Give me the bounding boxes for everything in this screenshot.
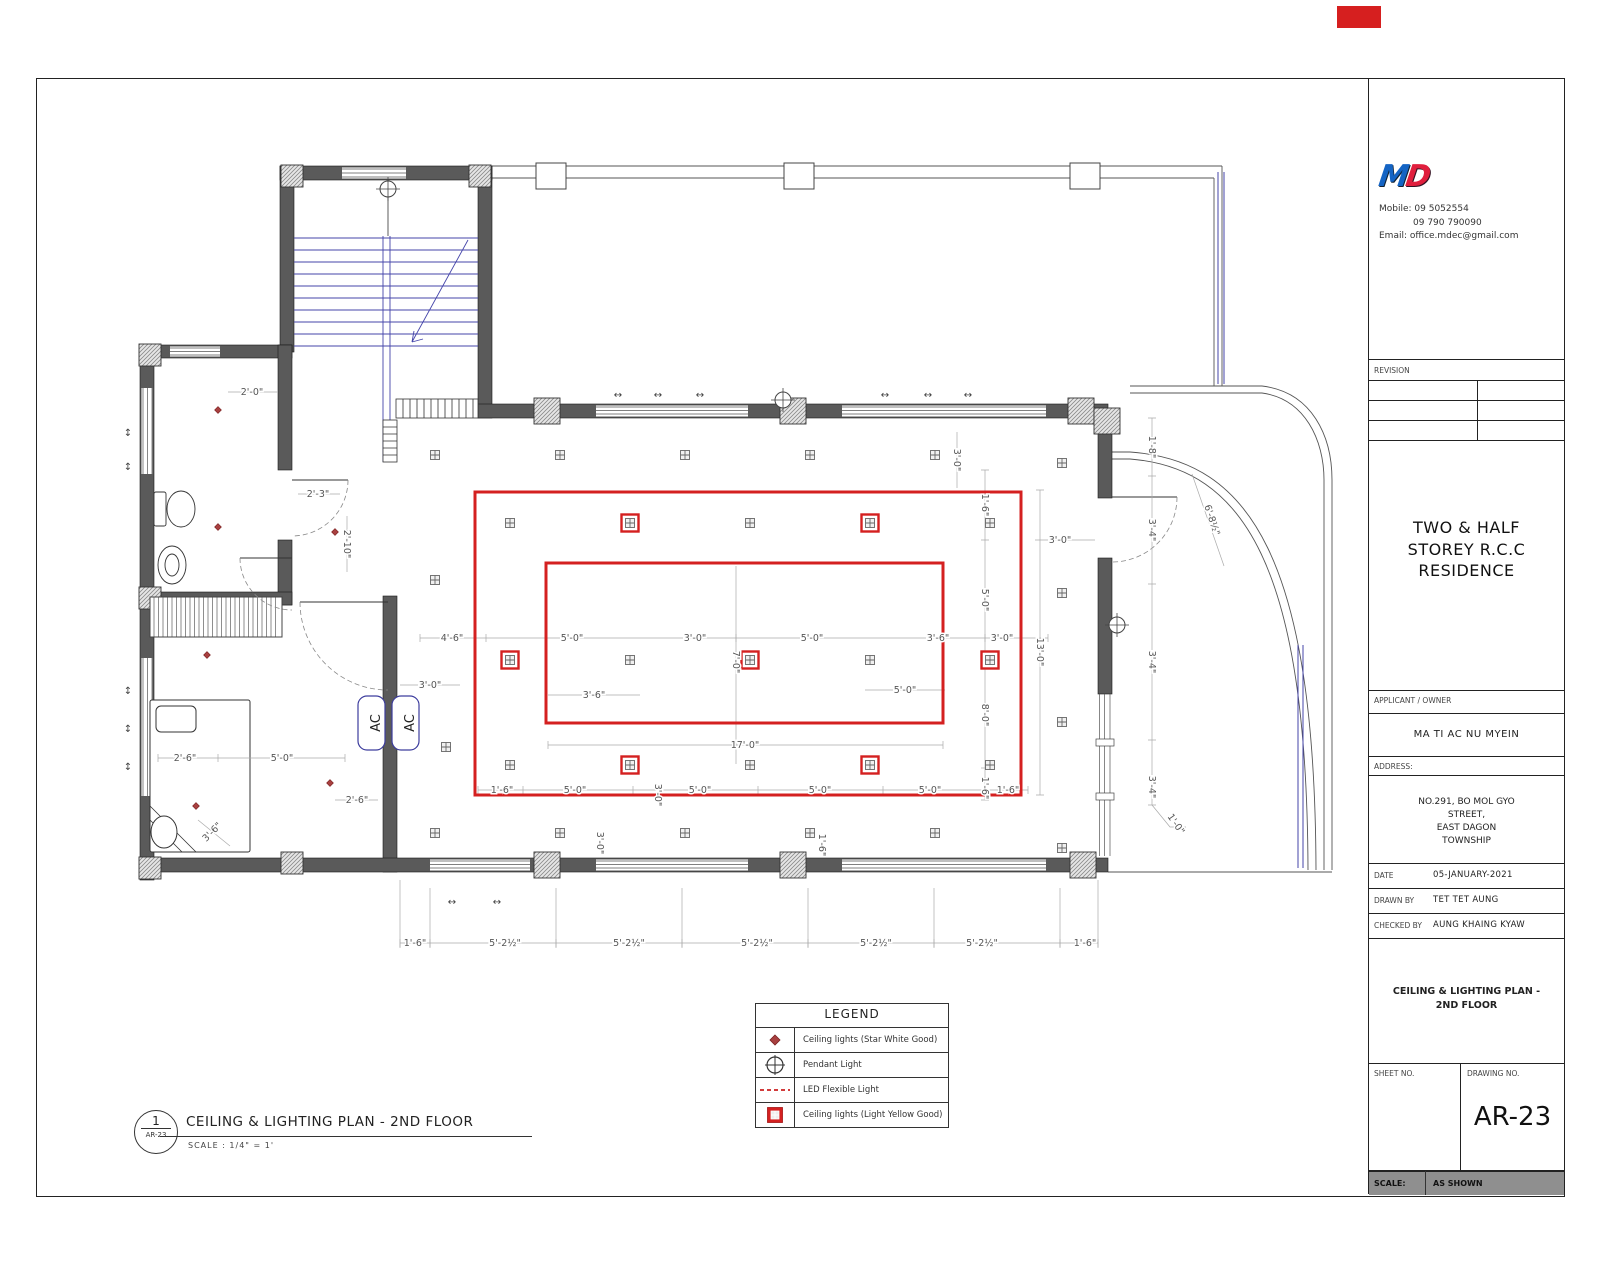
ceiling-light-yellow-icon xyxy=(622,515,639,532)
dimension-label: 5'-2½" xyxy=(966,938,998,949)
dimension-label: 5'-0" xyxy=(564,785,587,796)
dimension-label: 5'-0" xyxy=(894,685,917,696)
address-label: ADDRESS: xyxy=(1369,757,1564,776)
dimension-label: 5'-2½" xyxy=(489,938,521,949)
address-line: TOWNSHIP xyxy=(1369,835,1564,848)
window-blue-lines xyxy=(1218,172,1303,868)
callout-sheet-ref: AR-23 xyxy=(135,1129,177,1139)
ceiling-light-dot-icon xyxy=(332,529,339,536)
drawing-number: AR-23 xyxy=(1461,1102,1564,1132)
dimension-label: 1'-6" xyxy=(997,785,1020,796)
dimension-label: 2'-10" xyxy=(341,530,352,559)
title-block: MD Mobile: 09 5052554 09 790 790090 Emai… xyxy=(1368,79,1564,1194)
ceiling-light-yellow-icon xyxy=(982,652,999,669)
legend-row: LED Flexible Light xyxy=(756,1078,948,1103)
dimension-label: 5'-2½" xyxy=(860,938,892,949)
revision-row xyxy=(1369,401,1564,421)
window-arrow-icon: ↔ xyxy=(964,390,972,401)
dimension-label: 2'-6" xyxy=(346,795,369,806)
legend-row: Pendant Light xyxy=(756,1053,948,1078)
legend-table: LEGEND Ceiling lights (Star White Good) … xyxy=(755,1003,949,1128)
dimension-label: 8'-0" xyxy=(979,704,990,727)
revision-row xyxy=(1369,381,1564,401)
dimension-label: 13'-0" xyxy=(1034,638,1045,667)
ceiling-light-icon xyxy=(626,761,635,770)
scale-label: SCALE: xyxy=(1374,1179,1406,1188)
dimension-label: 1'-6" xyxy=(979,494,990,517)
ceiling-light-yellow-icon xyxy=(862,515,879,532)
dimension-label: 3'-6" xyxy=(583,690,606,701)
ceiling-light-icon xyxy=(626,519,635,528)
ceiling-light-icon xyxy=(1058,844,1067,853)
dimension-label: 3'-0" xyxy=(652,784,663,807)
legend-label: Ceiling lights (Light Yellow Good) xyxy=(795,1110,943,1120)
ceiling-light-icon xyxy=(866,656,875,665)
ceiling-light-icon xyxy=(866,519,875,528)
revision-row xyxy=(1369,421,1564,441)
window-arrow-icon: ↔ xyxy=(654,390,662,401)
ceiling-light-icon xyxy=(866,761,875,770)
dimension-label: 5'-0" xyxy=(689,785,712,796)
ac-label: AC xyxy=(403,714,418,732)
ceiling-light-dot-icon xyxy=(215,524,222,531)
callout-number: 1 xyxy=(141,1111,170,1129)
sheet-title: CEILING & LIGHTING PLAN - 2ND FLOOR xyxy=(1387,985,1547,1014)
dimension-label: 2'-6" xyxy=(174,753,197,764)
ceiling-light-yellow-icon xyxy=(862,757,879,774)
applicant-label: APPLICANT / OWNER xyxy=(1369,691,1564,714)
stair-break xyxy=(383,196,478,462)
scale-bar-divider xyxy=(1425,1171,1426,1195)
window-arrow-icon: ↕ xyxy=(124,462,132,473)
dimension-label: 3'-0" xyxy=(419,680,442,691)
dimension-label: 17'-0" xyxy=(731,740,760,751)
window-arrow-icon: ↕ xyxy=(124,762,132,773)
ceiling-light-icon xyxy=(806,451,815,460)
revision-divider xyxy=(1477,381,1478,441)
window-arrow-marks: ↔↔↔↔↔↔↔↔↕↕↕↕↕ xyxy=(124,390,972,908)
ceiling-light-yellow-icon xyxy=(622,757,639,774)
wardrobe xyxy=(150,597,282,637)
checked-by-value: AUNG KHAING KYAW xyxy=(1433,920,1525,930)
window-arrow-icon: ↔ xyxy=(924,390,932,401)
wash-basin xyxy=(158,546,186,584)
dimension-label: 3'-6" xyxy=(927,633,950,644)
ceiling-light-dot-icon xyxy=(204,652,211,659)
window-breaks xyxy=(1096,739,1114,800)
legend-label: LED Flexible Light xyxy=(795,1085,879,1095)
callout-bubble: 1 AR-23 xyxy=(134,1110,178,1154)
ceiling-light-icon xyxy=(556,829,565,838)
date-label: DATE xyxy=(1374,871,1394,880)
ceiling-light-icon xyxy=(442,743,451,752)
checked-by-label: CHECKED BY xyxy=(1374,921,1422,930)
window-arrow-icon: ↕ xyxy=(124,686,132,697)
upper-columns xyxy=(536,163,1100,189)
address-value: NO.291, BO MOL GYO STREET, EAST DAGON TO… xyxy=(1369,776,1564,864)
dimension-label: 1'-6" xyxy=(404,938,427,949)
dimension-label: 3'-0" xyxy=(594,832,605,855)
checked-by-row: CHECKED BY AUNG KHAING KYAW xyxy=(1369,914,1564,939)
scale-value: AS SHOWN xyxy=(1433,1179,1483,1188)
ceiling-light-icon xyxy=(506,656,515,665)
dimension-label: 3'-4" xyxy=(1146,519,1157,542)
drawn-by-value: TET TET AUNG xyxy=(1433,895,1499,905)
revision-label: REVISION xyxy=(1369,359,1564,381)
ceiling-light-yellow-icon xyxy=(756,1103,795,1127)
contact-mobile-2: 09 790 790090 xyxy=(1379,217,1518,231)
legend-row: Ceiling lights (Star White Good) xyxy=(756,1028,948,1053)
address-line: EAST DAGON xyxy=(1369,822,1564,835)
scale-bar: SCALE: AS SHOWN xyxy=(1369,1171,1564,1195)
window-arrow-icon: ↔ xyxy=(448,897,456,908)
ceiling-light-icon xyxy=(626,656,635,665)
window-arrow-icon: ↕ xyxy=(124,724,132,735)
company-logo: MD xyxy=(1377,159,1431,194)
window-arrow-icon: ↔ xyxy=(493,897,501,908)
ceiling-light-icon xyxy=(986,519,995,528)
ceiling-light-icon xyxy=(506,761,515,770)
ceiling-light-icon xyxy=(681,829,690,838)
sheet-number-section: SHEET NO. DRAWING NO. AR-23 xyxy=(1369,1064,1564,1171)
plan-scale: SCALE : 1/4" = 1' xyxy=(188,1141,274,1150)
ceiling-light-yellow-icon xyxy=(502,652,519,669)
ceiling-light-icon xyxy=(431,829,440,838)
contact-email: Email: office.mdec@gmail.com xyxy=(1379,230,1518,244)
ceiling-light-icon xyxy=(431,576,440,585)
ceiling-light-icon xyxy=(681,451,690,460)
window-arrow-icon: ↕ xyxy=(124,428,132,439)
ceiling-light-yellow-icon xyxy=(742,652,759,669)
ceiling-light-dot-icon xyxy=(327,780,334,787)
dimension-label: 3'-0" xyxy=(1049,535,1072,546)
false-ceiling-cove xyxy=(546,563,943,723)
drawing-no-label: DRAWING NO. xyxy=(1467,1069,1519,1078)
ceiling-light-icon xyxy=(986,761,995,770)
dimension-label: 5'-0" xyxy=(271,753,294,764)
ceiling-light-icon xyxy=(506,519,515,528)
ceiling-light-icon xyxy=(746,656,755,665)
dimension-label: 5'-2½" xyxy=(613,938,645,949)
drawing-sheet: AC AC xyxy=(0,0,1600,1280)
dimension-label: 4'-6" xyxy=(441,633,464,644)
legend-row: Ceiling lights (Light Yellow Good) xyxy=(756,1103,948,1127)
ceiling-light-icon xyxy=(1058,589,1067,598)
dimension-label: 1'-6" xyxy=(491,785,514,796)
applicant-name: MA TI AC NU MYEIN xyxy=(1369,714,1564,757)
dimension-label: 1'-8" xyxy=(1146,436,1157,459)
window-arrow-icon: ↔ xyxy=(696,390,704,401)
dimension-label: 5'-0" xyxy=(561,633,584,644)
ceiling-light-icon xyxy=(746,761,755,770)
window-arrow-icon: ↔ xyxy=(614,390,622,401)
ceiling-light-icon xyxy=(931,451,940,460)
dimension-label: 5'-0" xyxy=(809,785,832,796)
dimension-label: 5'-0" xyxy=(919,785,942,796)
address-line: NO.291, BO MOL GYO xyxy=(1369,796,1564,809)
led-flexible-light-icon xyxy=(756,1078,795,1102)
pendant-light-icon xyxy=(756,1053,795,1077)
dimension-label: 3'-4" xyxy=(1146,776,1157,799)
dimension-label: 3'-0" xyxy=(951,449,962,472)
dimension-label: 5'-0" xyxy=(801,633,824,644)
ceiling-light-dot-icon xyxy=(756,1028,795,1052)
plan-title-underline xyxy=(160,1136,532,1137)
legend-label: Ceiling lights (Star White Good) xyxy=(795,1035,937,1045)
project-title-section: TWO & HALF STOREY R.C.C RESIDENCE xyxy=(1369,441,1564,691)
ceiling-light-icon xyxy=(1058,718,1067,727)
address-line: STREET, xyxy=(1369,809,1564,822)
windows xyxy=(142,168,1047,871)
dimension-label: 5'-0" xyxy=(979,589,990,612)
date-row: DATE 05-JANUARY-2021 xyxy=(1369,864,1564,889)
project-title: TWO & HALF STOREY R.C.C RESIDENCE xyxy=(1401,517,1533,582)
dimension-label: 3'-0" xyxy=(991,633,1014,644)
contact-mobile: Mobile: 09 5052554 xyxy=(1379,203,1518,217)
ceiling-light-icon xyxy=(931,829,940,838)
legend-label: Pendant Light xyxy=(795,1060,862,1070)
ceiling-light-icon xyxy=(556,451,565,460)
toilet xyxy=(154,491,195,527)
drawn-by-label: DRAWN BY xyxy=(1374,896,1414,905)
plan-title: CEILING & LIGHTING PLAN - 2ND FLOOR xyxy=(186,1114,473,1130)
sheet-title-section: CEILING & LIGHTING PLAN - 2ND FLOOR xyxy=(1369,939,1564,1064)
dimension-label: 7'-0" xyxy=(730,651,741,674)
dimension-label: 1'-6" xyxy=(979,777,990,800)
dimension-label: 1'-6" xyxy=(1074,938,1097,949)
ceiling-light-icon xyxy=(746,519,755,528)
bed xyxy=(150,700,250,852)
legend-title: LEGEND xyxy=(756,1004,948,1028)
ceiling-light-icon xyxy=(986,656,995,665)
dimension-label: 2'-0" xyxy=(241,387,264,398)
ceiling-light-dot-icon xyxy=(215,407,222,414)
window-arrow-icon: ↔ xyxy=(881,390,889,401)
ceiling-light-icon xyxy=(1058,459,1067,468)
sheet-no-label: SHEET NO. xyxy=(1374,1069,1414,1078)
dimension-label: 5'-2½" xyxy=(741,938,773,949)
ceiling-light-icon xyxy=(431,451,440,460)
drawn-by-row: DRAWN BY TET TET AUNG xyxy=(1369,889,1564,914)
door-leaves xyxy=(240,480,1177,602)
sheet-no-cell xyxy=(1369,1064,1461,1171)
dimension-label: 1'-6" xyxy=(816,834,827,857)
pendant-light-icon xyxy=(376,177,400,201)
dimension-label: 6'-8½" xyxy=(1201,503,1221,537)
ceiling-light-icon xyxy=(806,829,815,838)
company-contact: Mobile: 09 5052554 09 790 790090 Email: … xyxy=(1379,203,1518,244)
dimension-label: 3'-0" xyxy=(684,633,707,644)
dimension-label: 3'-4" xyxy=(1146,651,1157,674)
ac-label: AC xyxy=(369,714,384,732)
dimension-label: 2'-3" xyxy=(307,489,330,500)
date-value: 05-JANUARY-2021 xyxy=(1433,870,1513,880)
